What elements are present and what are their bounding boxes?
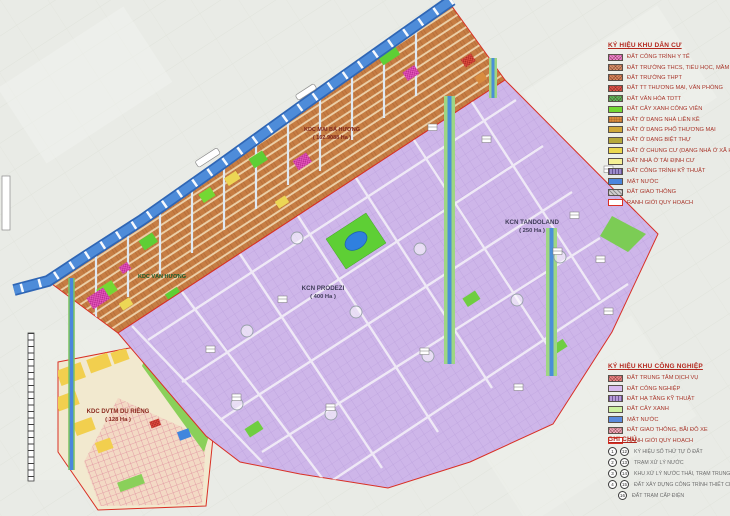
label-kdc-van-huong: KDC VẠN HƯƠNG	[138, 274, 186, 280]
swatch-van-hoa-tdtt	[608, 95, 623, 102]
legend-item: ĐẤT CÔNG TRÌNH Y TẾ	[608, 52, 730, 62]
legend-item: ĐẤT TRUNG TÂM DỊCH VỤ	[608, 373, 730, 383]
swatch-thpt	[608, 74, 623, 81]
legend-item: ĐẤT TRƯỜNG THPT	[608, 73, 730, 83]
railway-symbol	[28, 333, 34, 481]
legend-item: ĐẤT CÂY XANH	[608, 404, 730, 414]
label-kcn-prodezi-area: ( 400 Ha )	[310, 294, 336, 300]
label-kcn-prodezi: KCN PRODEZI	[302, 285, 345, 292]
note-symbol: 12	[620, 447, 629, 456]
swatch-thcs	[608, 64, 623, 71]
note-symbol: 16	[618, 491, 627, 500]
label-kcn-tandoland: KCN TANDOLAND	[505, 219, 559, 226]
legend-item: ĐẤT TRƯỜNG THCS, TIỂU HỌC, MẦM NON	[608, 62, 730, 72]
swatch-tt-dich-vu	[608, 375, 623, 382]
note-item: 314KHU XỬ LÝ NƯỚC THẢI, TRẠM TRUNG CHUYỂ…	[608, 468, 730, 479]
legend-item: ĐẤT CÂY XANH CÔNG VIÊN	[608, 104, 730, 114]
legend-item: ĐẤT GIAO THÔNG	[608, 187, 730, 197]
swatch-chung-cu	[608, 147, 623, 154]
master-plan-page: KDC MAI BÁ HƯƠNG ( 162.9088 Ha ) KDC VẠN…	[0, 0, 730, 516]
swatch-giao-thong	[608, 189, 623, 196]
legend-residential-title: KÝ HIỆU KHU DÂN CƯ	[608, 42, 730, 49]
legend-item: ĐẤT Ở DẠNG BIỆT THỰ	[608, 135, 730, 145]
swatch-giao-thong-kcn	[608, 427, 623, 434]
swatch-pho-thuong-mai	[608, 126, 623, 133]
note-item: 16ĐẤT TRẠM CẤP ĐIỆN	[608, 490, 730, 501]
legend-item: MẶT NƯỚC	[608, 177, 730, 187]
legend-residential: KÝ HIỆU KHU DÂN CƯ ĐẤT CÔNG TRÌNH Y TẾ Đ…	[608, 42, 730, 208]
legend-item: MẶT NƯỚC	[608, 415, 730, 425]
legend-item: ĐẤT HẠ TẦNG KỸ THUẬT	[608, 394, 730, 404]
legend-item: ĐẤT Ở DẠNG PHỐ THƯƠNG MẠI	[608, 125, 730, 135]
swatch-ha-tang	[608, 395, 623, 402]
notes-section: GHI CHÚ 112KÝ HIỆU SỐ THỨ TỰ Ô ĐẤT 213TR…	[608, 436, 730, 501]
swatch-mat-nuoc-kcn	[608, 416, 623, 423]
note-symbol: 14	[620, 469, 629, 478]
swatch-cay-xanh	[608, 406, 623, 413]
swatch-tt-thuong-mai	[608, 85, 623, 92]
legend-industrial: KÝ HIỆU KHU CÔNG NGHIỆP ĐẤT TRUNG TÂM DỊ…	[608, 363, 730, 446]
legend-item: ĐẤT Ở DẠNG NHÀ LIỀN KỀ	[608, 114, 730, 124]
notes-title: GHI CHÚ	[608, 436, 730, 443]
label-kdc-dvtm-area: ( 128 Ha )	[105, 417, 131, 423]
swatch-y-te	[608, 54, 623, 61]
note-symbol: 15	[620, 480, 629, 489]
note-symbol: 2	[608, 458, 617, 467]
legend-item: ĐẤT TT THƯƠNG MẠI, VĂN PHÒNG	[608, 83, 730, 93]
note-symbol: 4	[608, 480, 617, 489]
swatch-mat-nuoc	[608, 178, 623, 185]
swatch-biet-thu	[608, 137, 623, 144]
legend-item: ĐẤT NHÀ Ở TÁI ĐỊNH CƯ	[608, 156, 730, 166]
legend-item: ĐẤT CÔNG TRÌNH KỸ THUẬT	[608, 166, 730, 176]
legend-industrial-title: KÝ HIỆU KHU CÔNG NGHIỆP	[608, 363, 730, 370]
note-symbol: 3	[608, 469, 617, 478]
label-kcn-tandoland-area: ( 250 Ha )	[519, 228, 545, 234]
label-kdc-mai-ba-huong: KDC MAI BÁ HƯƠNG	[304, 126, 360, 133]
legend-item: RANH GIỚI QUY HOẠCH	[608, 197, 730, 207]
note-item: 112KÝ HIỆU SỐ THỨ TỰ Ô ĐẤT	[608, 446, 730, 457]
swatch-cay-xanh-cv	[608, 106, 623, 113]
swatch-tai-dinh-cu	[608, 158, 623, 165]
label-kdc-dvtm: KDC DVTM DU RIÊNG	[87, 407, 150, 415]
legend-item: ĐẤT Ở CHUNG CƯ (DẠNG NHÀ Ở XÃ HỘI)	[608, 146, 730, 156]
legend-item: ĐẤT CÔNG NGHIỆP	[608, 383, 730, 393]
swatch-cong-nghiep	[608, 385, 623, 392]
note-symbol: 13	[620, 458, 629, 467]
swatch-ranh-gioi	[608, 199, 623, 206]
swatch-lien-ke	[608, 116, 623, 123]
note-item: 213TRẠM XỬ LÝ NƯỚC	[608, 457, 730, 468]
label-kdc-mai-ba-huong-area: ( 162.9088 Ha )	[313, 135, 351, 141]
legend-item: ĐẤT GIAO THÔNG, BÃI ĐỖ XE	[608, 425, 730, 435]
note-item: 415ĐẤT XÂY DỰNG CÔNG TRÌNH THIẾT CHẾ VĂN…	[608, 479, 730, 490]
legend-item: ĐẤT VĂN HÓA TDTT	[608, 94, 730, 104]
swatch-ky-thuat	[608, 168, 623, 175]
note-symbol: 1	[608, 447, 617, 456]
